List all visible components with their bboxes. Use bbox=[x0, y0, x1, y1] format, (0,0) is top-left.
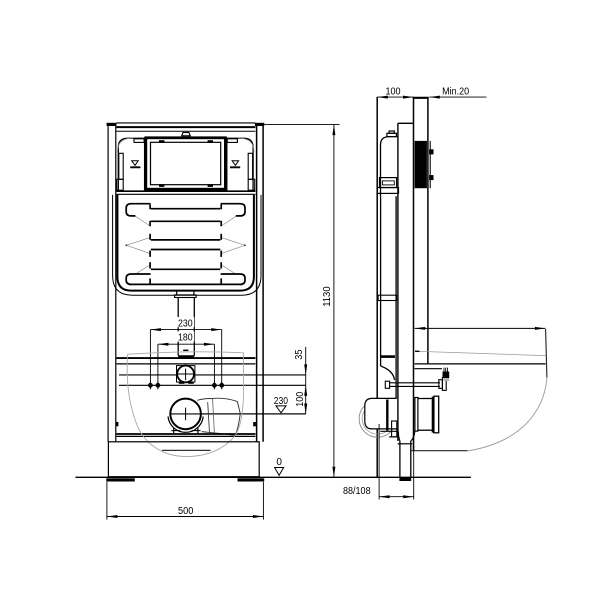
svg-text:1130: 1130 bbox=[322, 286, 333, 307]
svg-text:35: 35 bbox=[294, 349, 305, 360]
svg-text:0: 0 bbox=[276, 457, 282, 468]
svg-text:180: 180 bbox=[178, 333, 193, 344]
svg-text:230: 230 bbox=[274, 396, 289, 407]
svg-text:500: 500 bbox=[178, 506, 194, 517]
svg-text:100: 100 bbox=[295, 391, 306, 406]
svg-text:88/108: 88/108 bbox=[343, 486, 371, 497]
svg-text:Min.20: Min.20 bbox=[442, 86, 469, 97]
svg-text:230: 230 bbox=[178, 318, 193, 329]
svg-text:100: 100 bbox=[385, 86, 400, 97]
